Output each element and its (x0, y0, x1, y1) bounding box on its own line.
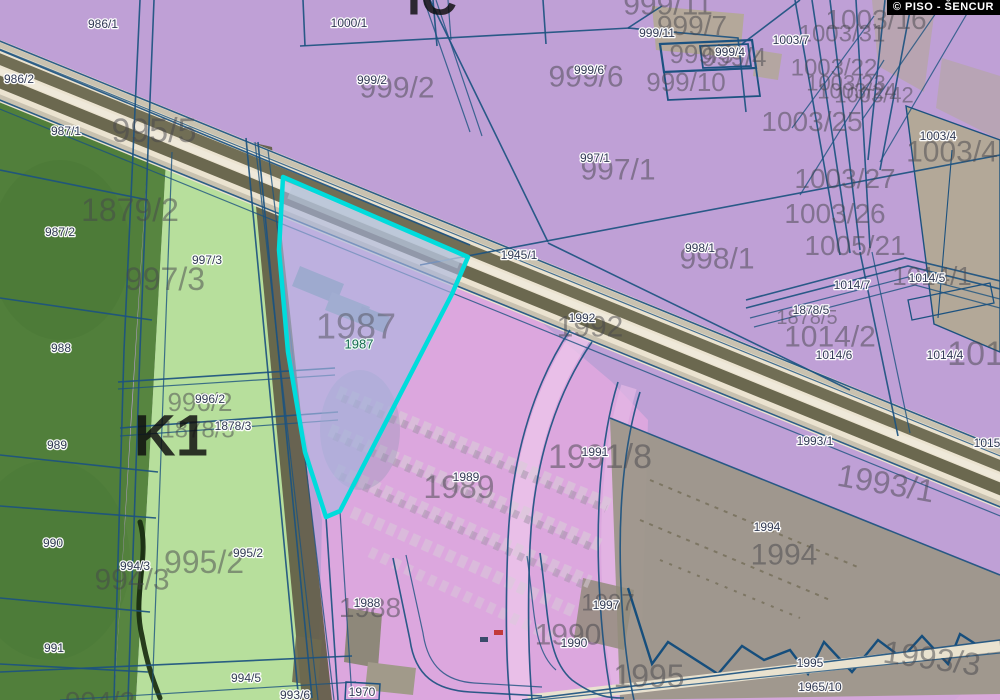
selected-parcel-labels: 19871987 (316, 306, 396, 352)
parcel-label: K1 (134, 403, 208, 468)
parcel-label: 998/1 (685, 241, 715, 255)
parcel-label: 995/2 (233, 546, 263, 560)
parcel-label: 1878/5 (793, 303, 830, 317)
parcel-label: 987/1 (51, 124, 81, 138)
parcel-label: 1988 (354, 596, 381, 610)
parcel-label: 1015/1 (974, 436, 1000, 450)
parcel-label: 1991 (582, 445, 609, 459)
parcel-label: 1014/6 (816, 348, 853, 362)
parcel-label: 999/11 (639, 26, 675, 40)
parcel-label: 1003/25 (761, 106, 862, 137)
parcel-label: 1945/1 (501, 248, 538, 262)
parcel-label: 1997 (593, 598, 620, 612)
parcel-label: 997/3 (192, 253, 222, 267)
parcel-label: 993/6 (280, 688, 310, 700)
parcel-label: 1014/5 (909, 271, 946, 285)
parcel-label: 994/5 (231, 671, 261, 685)
parcel-label: 1965/10 (798, 680, 842, 694)
parcel-label: 1987 (345, 337, 374, 352)
car (480, 637, 488, 642)
parcel-label: 1000/1 (331, 16, 368, 30)
parcel-label: 999/10 (646, 67, 726, 97)
map-viewport[interactable]: 1879/2995/5997/3996/21878/3994/3995/2994… (0, 0, 1000, 700)
parcel-label: 1003/42 (834, 83, 914, 108)
parcel-label: 1005/21 (804, 230, 905, 261)
parcel-label: 994/3 (120, 559, 150, 573)
parcel-label: 999/6 (574, 63, 604, 77)
parcel-label: 1014/4 (927, 348, 964, 362)
parcel-label: 996/2 (195, 392, 225, 406)
parcel-label: 1003/27 (794, 163, 895, 194)
parcel-label: 989 (47, 438, 67, 452)
parcel-label: 1878/3 (215, 419, 252, 433)
parcel-label: 999/4 (715, 45, 745, 59)
parcel-label: 999/2 (357, 73, 387, 87)
parcel-label: 1994 (754, 520, 781, 534)
parcel-label: 1990 (561, 636, 588, 650)
parcel-label: 991 (44, 641, 64, 655)
copyright-badge: © PISO - ŠENCUR (887, 0, 1000, 15)
parcel-label: 1003/26 (784, 198, 885, 229)
red-car (494, 630, 503, 635)
parcel-label: 987/2 (45, 225, 75, 239)
parcel-label: 988 (51, 341, 71, 355)
parcel-label: 1995 (797, 656, 824, 670)
cadastral-map[interactable]: 1879/2995/5997/3996/21878/3994/3995/2994… (0, 0, 1000, 700)
parcel-label: 1993/1 (797, 434, 834, 448)
parcel-label: 995/5 (111, 112, 196, 150)
parcel-label: 1003/7 (773, 33, 810, 47)
parcel-label: 997/1 (580, 151, 610, 165)
parcel-label: 1014/7 (834, 278, 871, 292)
parcel-label: 1003/31 (799, 20, 886, 47)
parcel-label: 1003/4 (920, 129, 957, 143)
parcel-label: 986/1 (88, 17, 118, 31)
parcel-label: 1992 (569, 311, 596, 325)
parcel-label: 990 (43, 536, 63, 550)
parcel-label: 1879/2 (81, 192, 179, 228)
parcel-label: 1994 (751, 539, 818, 572)
parcel-label: 986/2 (4, 72, 34, 86)
parcel-label: 1995 (613, 658, 684, 694)
parcel-label: 1989 (453, 470, 480, 484)
parcel-label: 994/2 (65, 686, 135, 700)
parcel-label: IC (407, 0, 457, 26)
parcel-label: 1970 (349, 685, 376, 699)
